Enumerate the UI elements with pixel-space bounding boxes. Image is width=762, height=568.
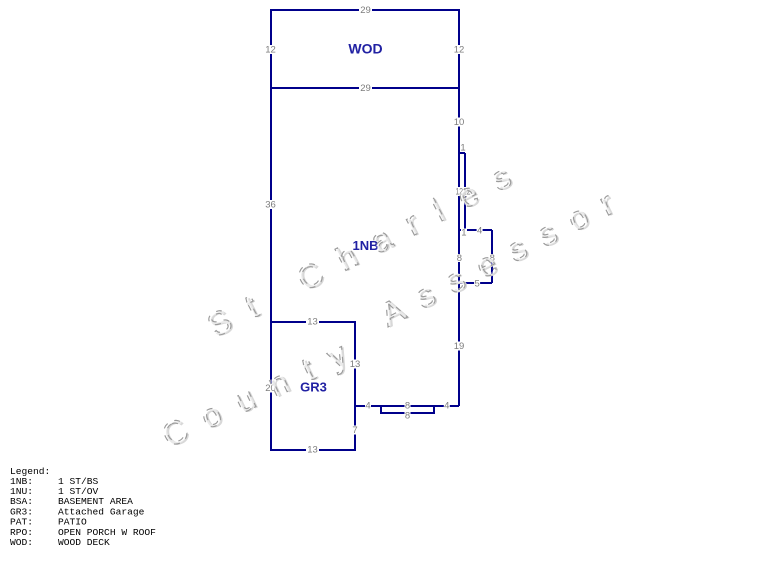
svg-text:4: 4: [477, 226, 482, 237]
svg-text:12: 12: [454, 45, 465, 56]
svg-text:7: 7: [352, 425, 357, 436]
svg-text:13: 13: [307, 445, 318, 456]
svg-text:WOOD DECK: WOOD DECK: [58, 537, 110, 548]
svg-text:19: 19: [454, 341, 465, 352]
svg-text:4: 4: [444, 401, 449, 412]
svg-text:4: 4: [365, 401, 370, 412]
svg-text:29: 29: [360, 5, 371, 16]
svg-text:WOD: WOD: [348, 41, 382, 57]
svg-text:12: 12: [265, 45, 276, 56]
svg-text:WOD:: WOD:: [10, 537, 33, 548]
svg-text:10: 10: [454, 117, 465, 128]
svg-text:8: 8: [405, 410, 410, 421]
svg-text:13: 13: [307, 317, 318, 328]
svg-text:29: 29: [360, 83, 371, 94]
svg-text:36: 36: [265, 200, 276, 211]
svg-text:1: 1: [461, 228, 466, 239]
svg-text:1: 1: [460, 143, 465, 154]
